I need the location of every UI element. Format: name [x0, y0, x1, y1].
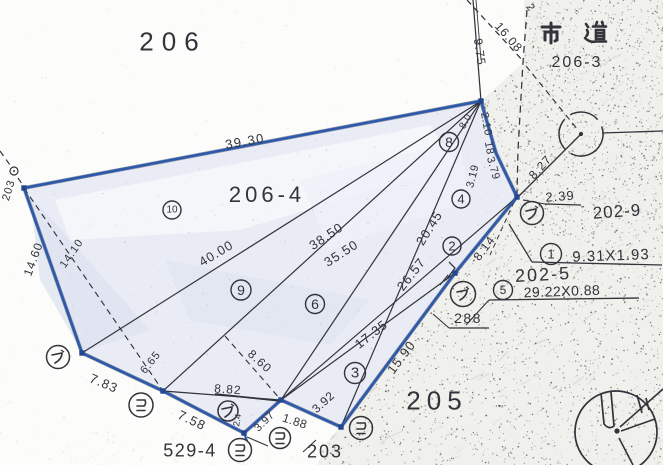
svg-text:529-4: 529-4 — [163, 441, 217, 461]
svg-text:29.22X0.88: 29.22X0.88 — [523, 282, 600, 301]
svg-text:9: 9 — [237, 282, 245, 298]
svg-text:10: 10 — [166, 205, 178, 216]
svg-text:3: 3 — [351, 365, 359, 382]
svg-text:18: 18 — [482, 141, 496, 156]
svg-text:205: 205 — [406, 385, 467, 415]
svg-text:6: 6 — [311, 296, 319, 312]
svg-text:9.31X1.93: 9.31X1.93 — [572, 246, 650, 266]
svg-text:8.82: 8.82 — [214, 381, 242, 397]
svg-text:4: 4 — [457, 192, 464, 207]
svg-text:8: 8 — [445, 134, 453, 150]
svg-text:2: 2 — [448, 239, 455, 254]
svg-text:5: 5 — [500, 283, 507, 297]
svg-text:206: 206 — [139, 26, 206, 56]
svg-text:206-4: 206-4 — [229, 182, 305, 207]
svg-text:202-9: 202-9 — [592, 200, 642, 222]
svg-text:206-3: 206-3 — [552, 54, 603, 71]
svg-text:203: 203 — [307, 442, 343, 462]
svg-text:288: 288 — [454, 310, 482, 326]
svg-text:2.39: 2.39 — [545, 188, 575, 205]
svg-text:1: 1 — [547, 247, 554, 262]
svg-text:2.4: 2.4 — [231, 413, 243, 427]
